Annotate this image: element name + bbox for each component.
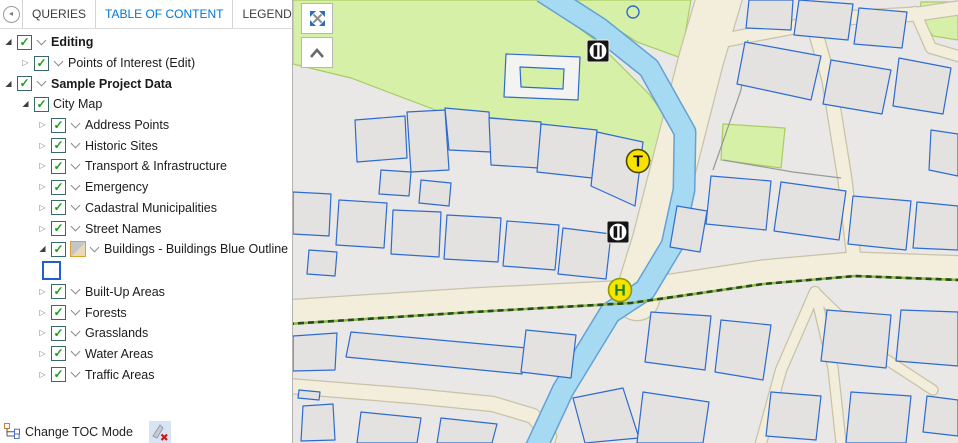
building [896, 310, 958, 366]
tab-bar: ◂QUERIESTABLE OF CONTENTLEGENDLAYERS▸▾ [0, 0, 292, 29]
checkmark-icon: ✓ [53, 119, 63, 131]
layer-checkbox[interactable]: ✓ [51, 326, 66, 341]
layer-row-street-names[interactable]: ▷✓Street Names [0, 218, 292, 239]
building [537, 124, 597, 178]
building [503, 221, 559, 270]
layer-row-city-map[interactable]: ◢✓City Map [0, 94, 292, 115]
tab-queries[interactable]: QUERIES [23, 0, 96, 28]
building [794, 0, 853, 40]
buildings-swatch-icon [70, 241, 86, 257]
chevron-down-icon[interactable] [71, 160, 81, 170]
layer-checkbox[interactable]: ✓ [34, 56, 49, 71]
building [715, 320, 771, 380]
building [301, 404, 335, 441]
layer-label: Traffic Areas [85, 368, 154, 382]
checkmark-icon: ✓ [53, 201, 63, 213]
layer-row-grasslands[interactable]: ▷✓Grasslands [0, 323, 292, 344]
layer-checkbox[interactable]: ✓ [17, 76, 32, 91]
chevron-down-icon[interactable] [37, 77, 47, 87]
checkmark-icon: ✓ [53, 347, 63, 359]
building [521, 330, 576, 378]
chevron-down-icon[interactable] [71, 180, 81, 190]
layer-label: Historic Sites [85, 139, 158, 153]
chevron-down-icon[interactable] [71, 306, 81, 316]
building [923, 396, 958, 436]
layer-row-forests[interactable]: ▷✓Forests [0, 302, 292, 323]
layer-row-cadastral-municipalities[interactable]: ▷✓Cadastral Municipalities [0, 198, 292, 219]
collapse-panel-button[interactable] [301, 37, 333, 68]
toc-footer: Change TOC Mode [0, 413, 292, 443]
toc-tree-icon [4, 423, 20, 442]
layer-label: Cadastral Municipalities [85, 201, 217, 215]
layer-row-address-points[interactable]: ▷✓Address Points [0, 115, 292, 136]
building [520, 67, 564, 89]
layer-label: Sample Project Data [51, 77, 172, 91]
toc-panel: ◂QUERIESTABLE OF CONTENTLEGENDLAYERS▸▾ ◢… [0, 0, 293, 443]
clear-selection-button[interactable] [149, 421, 171, 443]
full-extent-button[interactable] [301, 3, 333, 34]
checkmark-icon: ✓ [53, 368, 63, 380]
layer-tree: ◢✓Editing▷✓Points of Interest (Edit)◢✓Sa… [0, 29, 292, 413]
layer-checkbox[interactable]: ✓ [51, 305, 66, 320]
checkmark-icon: ✓ [19, 77, 29, 89]
expand-node-icon[interactable]: ▷ [20, 59, 31, 67]
layer-checkbox[interactable]: ✓ [51, 200, 66, 215]
map-view[interactable]: TH [293, 0, 958, 443]
svg-text:H: H [614, 283, 626, 300]
layer-label: Transport & Infrastructure [85, 159, 227, 173]
expand-node-icon[interactable]: ▷ [37, 329, 48, 337]
layer-label: Built-Up Areas [85, 285, 165, 299]
layer-row-emergency[interactable]: ▷✓Emergency [0, 177, 292, 198]
building [929, 130, 958, 176]
map-svg[interactable]: TH [293, 0, 958, 443]
monument-poi-icon[interactable] [587, 40, 609, 62]
collapse-node-icon[interactable]: ◢ [37, 245, 48, 253]
layer-row-buildings-buildings-blue-outline[interactable]: ◢✓Buildings - Buildings Blue Outline [0, 239, 292, 260]
layer-row-built-up-areas[interactable]: ▷✓Built-Up Areas [0, 282, 292, 303]
expand-node-icon[interactable]: ▷ [37, 142, 48, 150]
map-controls [301, 3, 333, 71]
building-outline-symbol [42, 261, 61, 280]
chevron-up-icon [308, 47, 326, 59]
bus-stop-marker[interactable]: H [609, 279, 632, 302]
building [766, 392, 821, 440]
expand-node-icon[interactable]: ▷ [37, 350, 48, 358]
checkmark-icon: ✓ [53, 139, 63, 151]
chevron-down-icon[interactable] [71, 222, 81, 232]
change-toc-mode-label[interactable]: Change TOC Mode [25, 425, 133, 439]
chevron-down-icon[interactable] [71, 347, 81, 357]
building [489, 118, 541, 168]
building [821, 310, 891, 368]
layer-checkbox[interactable]: ✓ [51, 346, 66, 361]
monument-poi-icon[interactable] [607, 221, 629, 243]
building [307, 250, 337, 276]
layer-label: Grasslands [85, 326, 148, 340]
checkmark-icon: ✓ [53, 306, 63, 318]
chevron-down-icon[interactable] [90, 242, 100, 252]
chevron-down-icon[interactable] [71, 285, 81, 295]
layer-label: Points of Interest (Edit) [68, 56, 195, 70]
layer-label: Address Points [85, 118, 169, 132]
nav-prev-tabs-button-icon: ◂ [3, 6, 20, 23]
building [645, 312, 711, 370]
layer-row-traffic-areas[interactable]: ▷✓Traffic Areas [0, 364, 292, 385]
chevron-down-icon[interactable] [54, 56, 64, 66]
expand-node-icon[interactable]: ▷ [37, 309, 48, 317]
layer-checkbox[interactable]: ✓ [51, 118, 66, 133]
nav-prev-tabs-button[interactable]: ◂ [0, 0, 23, 28]
expand-node-icon[interactable]: ▷ [37, 204, 48, 212]
building [706, 176, 771, 230]
layer-row-points-of-interest-edit-[interactable]: ▷✓Points of Interest (Edit) [0, 53, 292, 74]
building [355, 116, 407, 162]
building [774, 182, 846, 240]
checkmark-icon: ✓ [53, 243, 63, 255]
chevron-down-icon[interactable] [71, 326, 81, 336]
collapse-node-icon[interactable]: ◢ [3, 80, 14, 88]
building [823, 60, 891, 114]
building [854, 8, 907, 48]
layer-label: Street Names [85, 222, 161, 236]
checkmark-icon: ✓ [53, 181, 63, 193]
layer-checkbox[interactable]: ✓ [51, 284, 66, 299]
expand-node-icon[interactable]: ▷ [37, 183, 48, 191]
building [336, 200, 387, 248]
layer-label: Editing [51, 35, 93, 49]
layer-row-editing[interactable]: ◢✓Editing [0, 32, 292, 53]
expand-node-icon[interactable]: ▷ [37, 225, 48, 233]
full-extent-arrows-icon [308, 9, 327, 28]
checkmark-icon: ✓ [53, 327, 63, 339]
svg-text:T: T [633, 154, 643, 171]
layer-row-historic-sites[interactable]: ▷✓Historic Sites [0, 135, 292, 156]
chevron-down-icon[interactable] [71, 201, 81, 211]
expand-node-icon[interactable]: ▷ [37, 288, 48, 296]
building [419, 180, 451, 206]
building [293, 333, 337, 371]
layer-checkbox[interactable]: ✓ [51, 242, 66, 257]
layer-label: Water Areas [85, 347, 153, 361]
building [444, 215, 501, 262]
layer-label: Forests [85, 306, 127, 320]
layer-checkbox[interactable]: ✓ [17, 35, 32, 50]
layer-checkbox[interactable]: ✓ [51, 159, 66, 174]
expand-node-icon[interactable]: ▷ [37, 162, 48, 170]
layer-checkbox[interactable]: ✓ [51, 138, 66, 153]
expand-node-icon[interactable]: ▷ [37, 121, 48, 129]
layer-checkbox[interactable]: ✓ [51, 221, 66, 236]
chevron-down-icon[interactable] [71, 118, 81, 128]
building [846, 392, 911, 443]
building [293, 192, 331, 236]
checkmark-icon: ✓ [53, 285, 63, 297]
layer-checkbox[interactable]: ✓ [51, 180, 66, 195]
chevron-down-icon[interactable] [71, 368, 81, 378]
collapse-node-icon[interactable]: ◢ [3, 38, 14, 46]
collapse-node-icon[interactable]: ◢ [20, 100, 31, 108]
building [913, 202, 958, 250]
layer-row-water-areas[interactable]: ▷✓Water Areas [0, 344, 292, 365]
chevron-down-icon[interactable] [71, 139, 81, 149]
building [357, 412, 421, 443]
layer-checkbox[interactable]: ✓ [51, 367, 66, 382]
legend-symbol-row [0, 260, 292, 282]
building [848, 196, 911, 250]
building [445, 108, 491, 152]
layer-checkbox[interactable]: ✓ [34, 97, 49, 112]
chevron-down-icon[interactable] [37, 35, 47, 45]
tab-table-of-content[interactable]: TABLE OF CONTENT [96, 0, 233, 28]
tram-stop-marker[interactable]: T [627, 150, 650, 173]
checkmark-icon: ✓ [53, 222, 63, 234]
building [379, 170, 411, 196]
building [746, 0, 793, 30]
layer-row-transport-infrastructure[interactable]: ▷✓Transport & Infrastructure [0, 156, 292, 177]
building [670, 206, 707, 252]
checkmark-icon: ✓ [36, 98, 46, 110]
checkmark-icon: ✓ [36, 57, 46, 69]
building [407, 110, 449, 172]
layer-label: City Map [53, 97, 102, 111]
expand-node-icon[interactable]: ▷ [37, 371, 48, 379]
checkmark-icon: ✓ [19, 36, 29, 48]
layer-row-sample-project-data[interactable]: ◢✓Sample Project Data [0, 73, 292, 94]
building [391, 210, 441, 257]
building [298, 390, 320, 400]
checkmark-icon: ✓ [53, 160, 63, 172]
building [558, 228, 611, 279]
layer-label: Emergency [85, 180, 148, 194]
layer-label: Buildings - Buildings Blue Outline [104, 242, 288, 256]
building [893, 58, 951, 114]
tab-legend[interactable]: LEGEND [233, 0, 292, 28]
